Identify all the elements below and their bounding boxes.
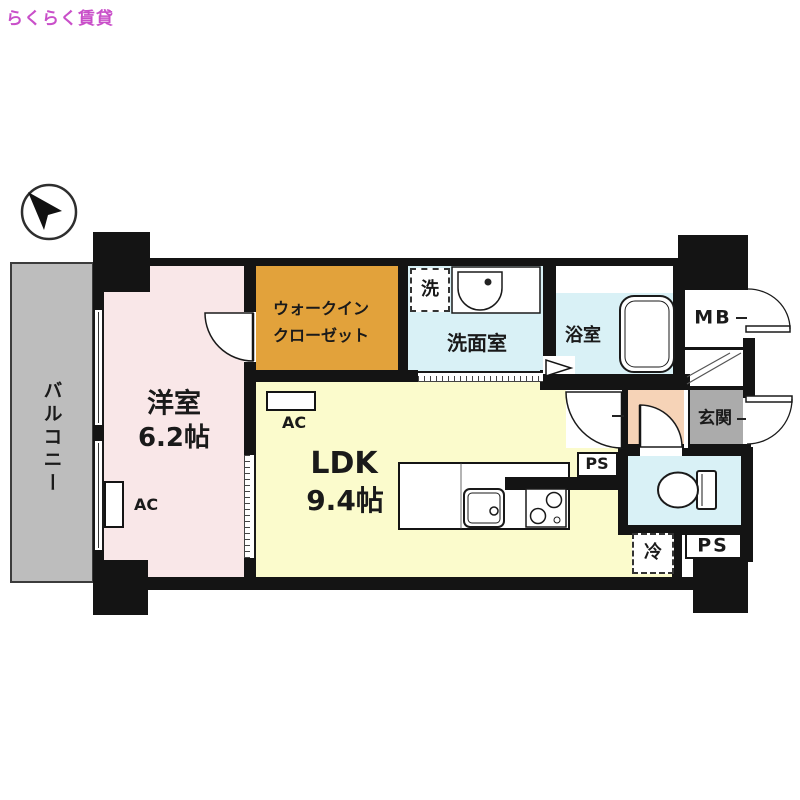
entrance-hall-area: [628, 388, 685, 448]
toilet-room-area: [628, 456, 741, 525]
wall-bath-right: [673, 266, 685, 376]
site-logo[interactable]: らくらく賃貸: [6, 4, 114, 29]
western-room-label: 洋室: [147, 391, 201, 418]
wall-left-mullion: [93, 425, 104, 441]
western-room-area: [104, 266, 244, 577]
ac-unit-ldk: [266, 391, 316, 411]
wall-hall-top: [556, 374, 690, 390]
wall-wic-washroom: [398, 266, 408, 370]
kitchen-counter: [398, 462, 570, 530]
walk-in-closet-area: [256, 266, 398, 372]
pipe-space-label: PS: [585, 456, 608, 472]
pillar-bottom-right: [693, 558, 748, 613]
bathroom-counter-band: [556, 266, 673, 294]
wall-left: [93, 262, 104, 310]
kitchen-wall-bar: [505, 477, 628, 490]
mb-door-leaf: [746, 326, 790, 332]
entrance-door-arc: [747, 399, 792, 444]
compass-icon: [22, 185, 76, 239]
sliding-door: [418, 371, 543, 382]
fridge-label: 冷: [644, 544, 662, 562]
bath-door-opening: [543, 356, 575, 374]
sliding-door-track: [245, 455, 250, 558]
sliding-door-track: [418, 376, 543, 381]
wall-toilet-left: [618, 448, 628, 535]
wall-door-post: [622, 390, 628, 448]
wall-top: [140, 258, 685, 266]
wall-bottom: [96, 577, 700, 590]
wic-label-line2: クローゼット: [273, 328, 369, 344]
floor-plan-page: らくらく賃貸: [0, 0, 800, 800]
ldk-size-label: 9.4帖: [306, 487, 384, 515]
balcony-label: バルコニー: [42, 381, 61, 496]
pillar-top-right: [678, 235, 748, 290]
washroom-label: 洗面室: [447, 333, 507, 353]
wall-right: [741, 447, 753, 562]
window: [93, 441, 104, 550]
wall-right: [743, 338, 755, 398]
ldk-area: [256, 528, 672, 577]
pipe-space-label: PS: [697, 537, 729, 556]
wic-door-opening: [244, 312, 256, 362]
ac-label-western-room: AC: [134, 497, 158, 513]
western-room-size-label: 6.2帖: [138, 425, 210, 451]
ldk-label: LDK: [310, 449, 377, 479]
entrance-label: 玄関: [698, 411, 732, 428]
meter-box-label: MB: [694, 309, 731, 328]
ldk-door-opening: [566, 390, 622, 448]
wall-wic-bottom: [244, 370, 418, 382]
wall-mb-divider: [685, 347, 743, 350]
washer-label: 洗: [421, 281, 439, 299]
sliding-door: [244, 455, 256, 558]
wic-label-line1: ウォークイン: [273, 301, 369, 317]
wall-washroom-bath: [543, 266, 556, 356]
window: [93, 310, 104, 425]
shaft-area: [685, 352, 743, 386]
mb-door-arc: [748, 289, 790, 329]
toilet-door-opening: [640, 446, 682, 456]
entrance-threshold: [684, 390, 688, 448]
ac-unit-western-room: [104, 481, 124, 528]
wall-shaft-divider: [685, 386, 743, 390]
ac-label-ldk: AC: [282, 415, 306, 431]
bathroom-label: 浴室: [565, 327, 601, 345]
entrance-step-line: [688, 390, 690, 448]
